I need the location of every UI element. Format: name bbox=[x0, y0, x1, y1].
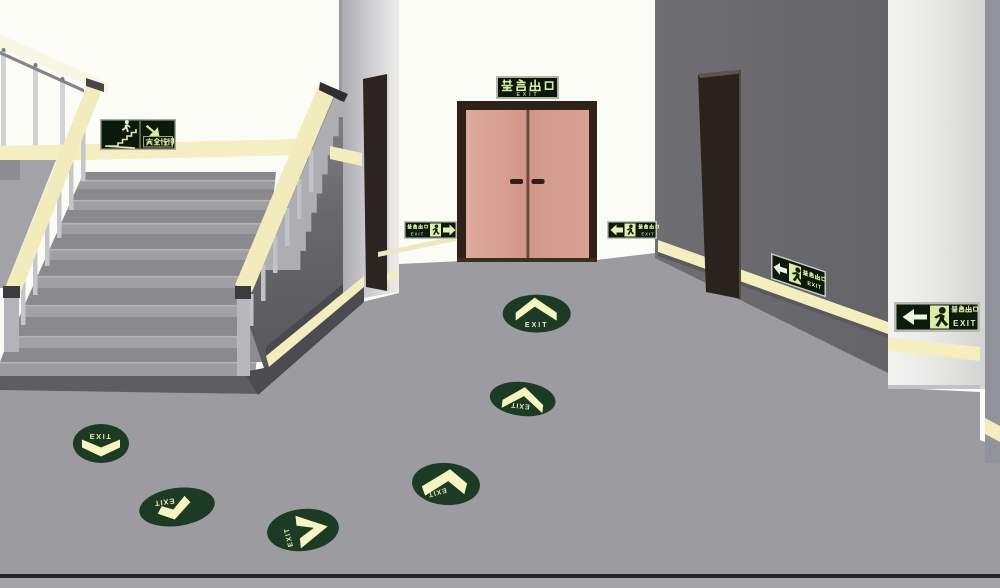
svg-text:EXIT: EXIT bbox=[525, 322, 549, 329]
svg-text:EXIT: EXIT bbox=[411, 232, 424, 237]
svg-text:EXIT: EXIT bbox=[90, 432, 113, 441]
svg-text:EXIT: EXIT bbox=[516, 92, 539, 98]
svg-text:EXIT: EXIT bbox=[641, 232, 654, 237]
svg-text:EXIT: EXIT bbox=[953, 319, 977, 328]
